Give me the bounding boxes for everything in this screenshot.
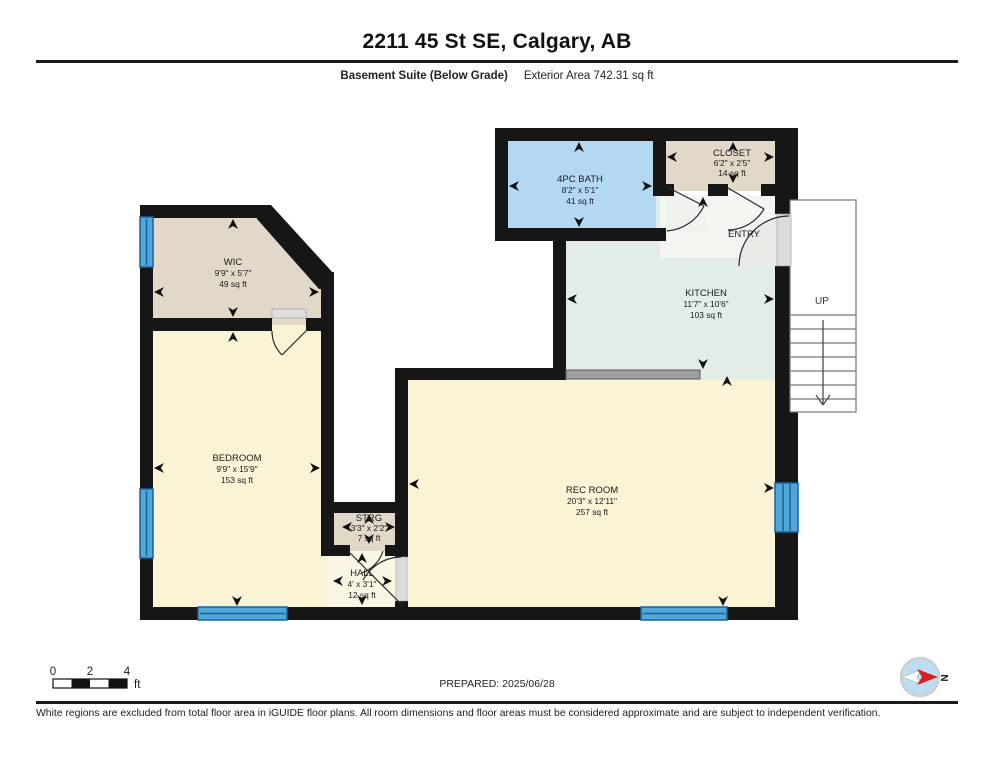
- entry-door-panel: [777, 214, 791, 266]
- kitchen-counter: [566, 370, 700, 379]
- scale-tick-2: 2: [87, 666, 93, 678]
- room-dims-bedroom: 9'9" x 15'9": [216, 464, 257, 474]
- room-dims-wic: 9'9" x 5'7": [215, 268, 252, 278]
- room-label-kitchen: KITCHEN: [685, 288, 727, 299]
- room-area-bedroom: 153 sq ft: [221, 475, 254, 485]
- rec-right-window: [775, 483, 798, 532]
- floor-plan: WIC 9'9" x 5'7" 49 sq ft 4PC BATH 8'2" x…: [0, 0, 994, 768]
- room-area-hall: 12 sq ft: [348, 590, 376, 600]
- room-dims-closet: 6'2" x 2'5": [714, 158, 751, 168]
- room-label-entry: ENTRY: [728, 229, 761, 240]
- scale-bar: 0 2 4 ft: [50, 666, 141, 691]
- room-label-rec: REC ROOM: [566, 485, 618, 496]
- compass-north-label: N: [938, 674, 949, 681]
- room-area-closet: 14 sq ft: [718, 168, 746, 178]
- room-area-wic: 49 sq ft: [219, 279, 247, 289]
- disclaimer-text: White regions are excluded from total fl…: [36, 708, 966, 719]
- room-dims-bath: 8'2" x 5'1": [562, 185, 599, 195]
- room-dims-strg: 3'3" x 2'2": [351, 523, 388, 533]
- floor-plan-page: 2211 45 St SE, Calgary, AB Basement Suit…: [0, 0, 994, 768]
- compass-icon: N: [901, 658, 949, 696]
- room-label-hall: HALL: [350, 568, 374, 579]
- room-area-strg: 7 sq ft: [358, 533, 381, 543]
- room-dims-hall: 4' x 3'1": [348, 579, 377, 589]
- room-label-bedroom: BEDROOM: [212, 453, 261, 464]
- footer-divider: [36, 701, 958, 704]
- room-label-wic: WIC: [224, 257, 243, 268]
- room-area-kitchen: 103 sq ft: [690, 310, 723, 320]
- room-area-rec: 257 sq ft: [576, 507, 609, 517]
- room-area-bath: 41 sq ft: [566, 196, 594, 206]
- room-dims-rec: 20'3" x 12'11": [567, 496, 617, 506]
- scale-unit: ft: [134, 679, 141, 691]
- hall-rec-door-panel: [396, 557, 407, 601]
- room-dims-kitchen: 11'7" x 10'6": [683, 299, 728, 309]
- scale-tick-4: 4: [124, 666, 131, 678]
- scale-tick-0: 0: [50, 666, 56, 678]
- stairs-up-label: UP: [815, 296, 829, 307]
- room-label-bath: 4PC BATH: [557, 174, 603, 185]
- wic-door-panel: [272, 309, 306, 318]
- prepared-date: PREPARED: 2025/06/28: [439, 678, 555, 690]
